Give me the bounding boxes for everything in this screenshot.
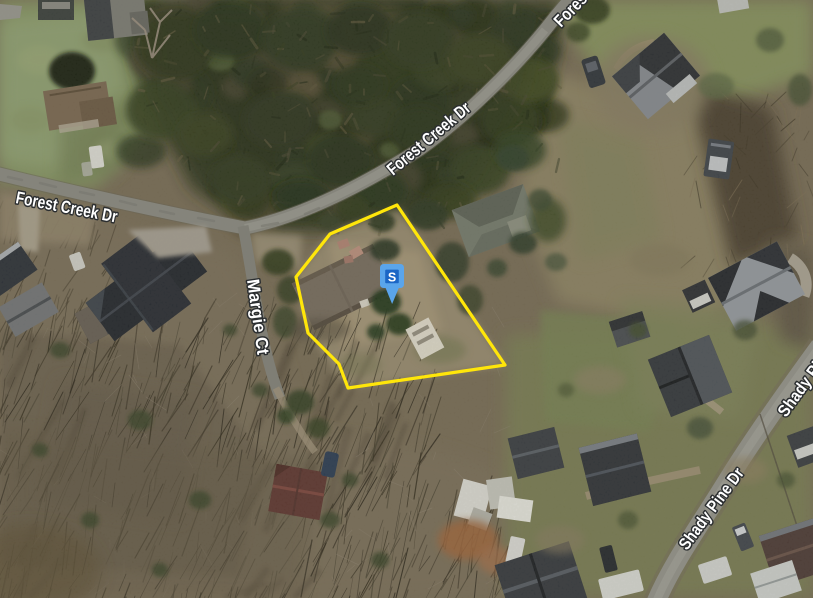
svg-text:S: S <box>388 270 396 284</box>
